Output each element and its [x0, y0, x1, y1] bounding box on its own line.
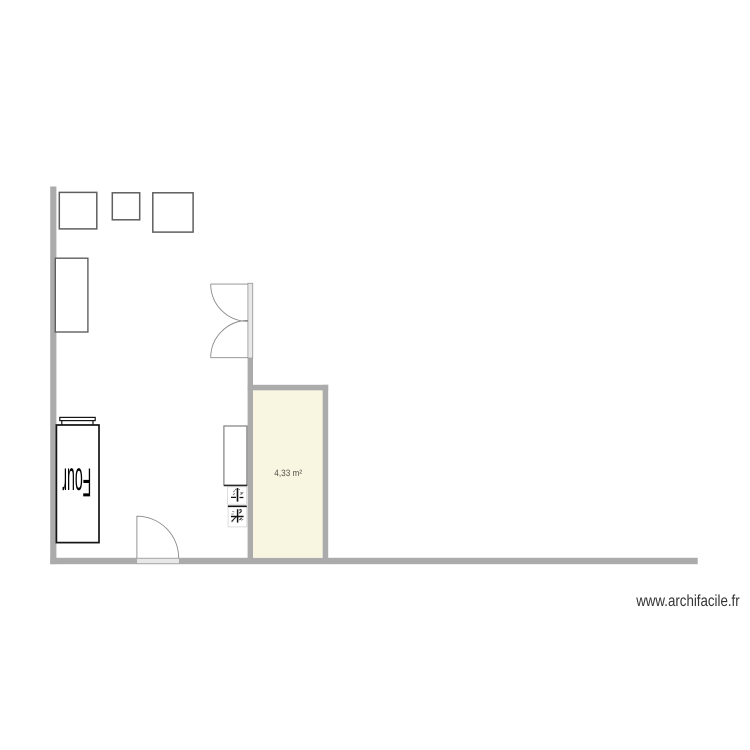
- svg-text:www.archifacile.fr: www.archifacile.fr: [635, 593, 740, 610]
- svg-text:4,33 m²: 4,33 m²: [274, 468, 302, 478]
- svg-text:Four: Four: [62, 460, 91, 506]
